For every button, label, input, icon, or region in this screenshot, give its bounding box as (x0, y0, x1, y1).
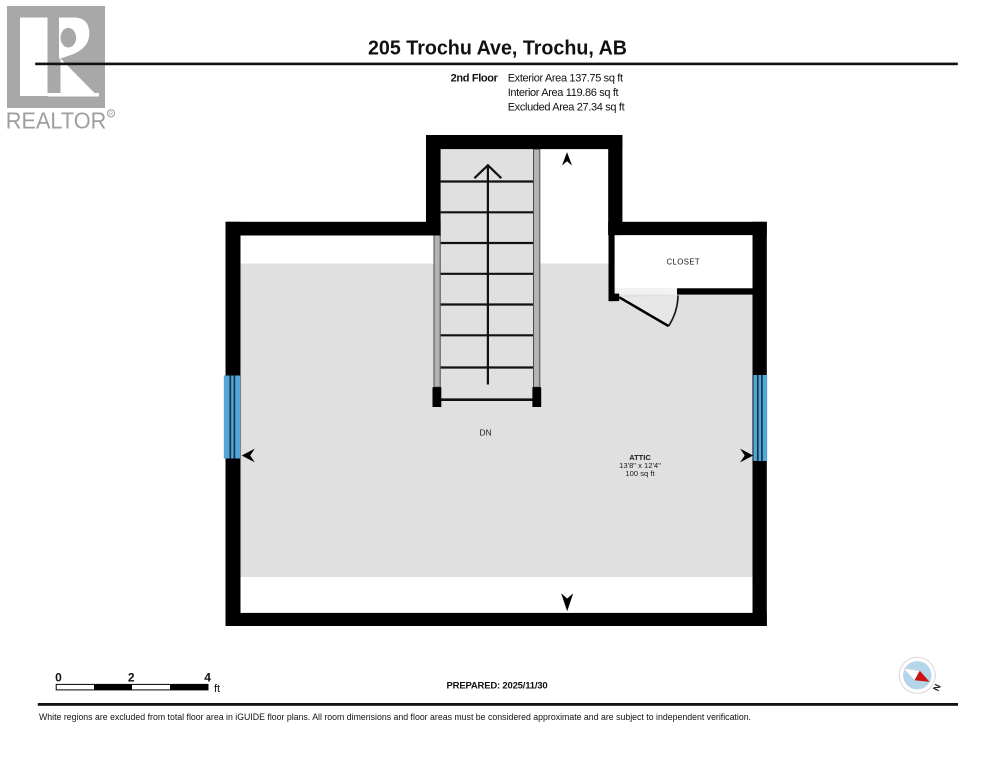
svg-text:100 sq ft: 100 sq ft (625, 469, 655, 478)
svg-text:Exterior Area 137.75 sq ft: Exterior Area 137.75 sq ft (508, 73, 623, 85)
svg-text:205 Trochu Ave, Trochu, AB: 205 Trochu Ave, Trochu, AB (368, 36, 627, 59)
svg-text:Excluded Area 27.34 sq ft: Excluded Area 27.34 sq ft (508, 101, 625, 113)
svg-text:CLOSET: CLOSET (666, 258, 700, 267)
svg-text:2nd Floor: 2nd Floor (451, 73, 499, 85)
svg-text:White regions are excluded fro: White regions are excluded from total fl… (39, 712, 751, 722)
svg-text:ft: ft (214, 683, 220, 695)
svg-text:4: 4 (204, 671, 211, 685)
svg-text:0: 0 (55, 671, 62, 685)
svg-text:REALTOR: REALTOR (6, 108, 107, 134)
svg-text:2: 2 (128, 671, 135, 685)
svg-text:Interior Area 119.86 sq ft: Interior Area 119.86 sq ft (508, 87, 619, 99)
svg-text:R: R (109, 111, 113, 117)
svg-text:PREPARED: 2025/11/30: PREPARED: 2025/11/30 (447, 681, 548, 692)
svg-text:DN: DN (479, 427, 491, 437)
